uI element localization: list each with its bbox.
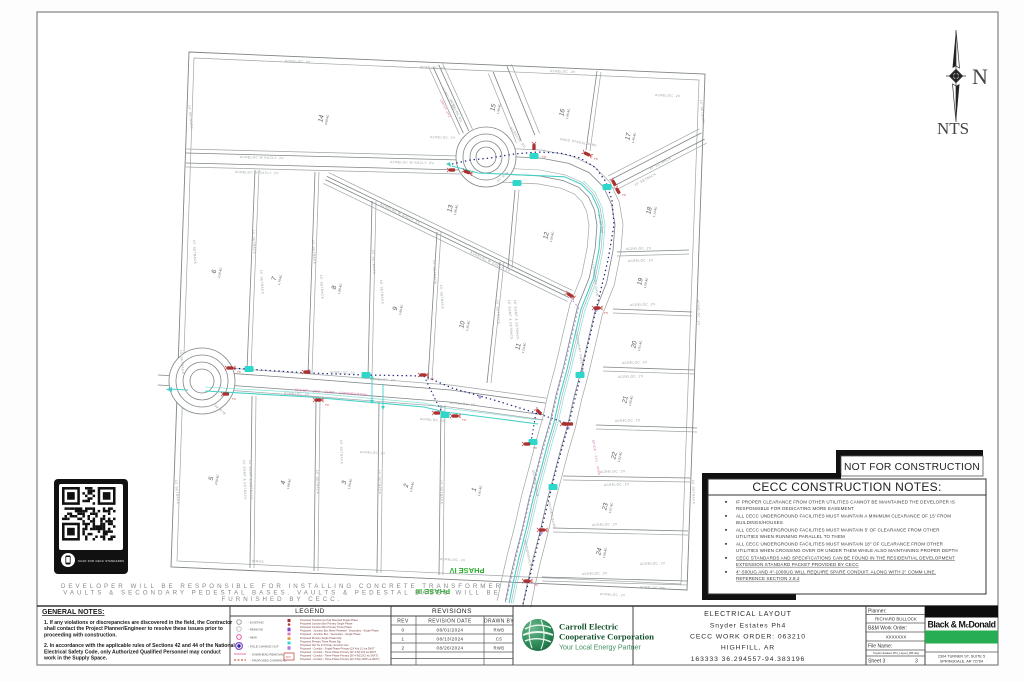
svg-text:BUILDINGS/HOUSES: BUILDINGS/HOUSES: [736, 520, 783, 525]
svg-text:Cooperative Corporation: Cooperative Corporation: [559, 632, 654, 642]
svg-text:REV: REV: [397, 619, 409, 625]
svg-text:2. In accordance with the app: 2. In accordance with the applicable rul…: [44, 643, 235, 649]
svg-text:DRAWN BY: DRAWN BY: [484, 619, 514, 625]
svg-text:ELECTRICAL LAYOUT: ELECTRICAL LAYOUT: [704, 611, 792, 618]
svg-text:163333 36.294557-94.383196: 163333 36.294557-94.383196: [691, 656, 806, 663]
svg-text:Your Local Energy Partner: Your Local Energy Partner: [559, 645, 642, 652]
svg-text:NTS: NTS: [937, 119, 969, 138]
svg-text:Proposed - Junction Box Meter: Proposed - Junction Box Meter Pedestal -…: [300, 629, 379, 633]
svg-text:RESPONSIBLE FOR DEDICATING MOR: RESPONSIBLE FOR DEDICATING MORE EASEMENT: [736, 506, 854, 511]
svg-text:Proposed Transformer Pad Mount: Proposed Transformer Pad Mounted Single …: [300, 618, 359, 622]
svg-text:CECC CONSTRUCTION NOTES:: CECC CONSTRUCTION NOTES:: [752, 480, 941, 494]
svg-text:ALL CECC UNDERGROUND FACILITIE: ALL CECC UNDERGROUND FACILITIES MUST MAI…: [736, 528, 940, 533]
svg-text:ALL CECC UNDERGROUND FACILITIE: ALL CECC UNDERGROUND FACILITIES MUST MAI…: [736, 542, 944, 547]
svg-text:Proposed - Conduit - Three Pha: Proposed - Conduit - Three Phase Primary…: [300, 650, 377, 654]
svg-text:2304 TURNER ST, SUITE 5: 2304 TURNER ST, SUITE 5: [938, 655, 985, 659]
svg-text:Proposed Hot Tie In Primary Ju: Proposed Hot Tie In Primary Junction Can: [300, 643, 349, 647]
svg-text:08/13/2024: 08/13/2024: [437, 637, 464, 642]
svg-text:TX: TX: [594, 157, 598, 161]
svg-text:work in the Supply Space.: work in the Supply Space.: [43, 656, 108, 662]
svg-text:08/01/2024: 08/01/2024: [437, 628, 464, 633]
svg-text:Proposed Primary Single Phase: Proposed Primary Single Phase Dip: [300, 636, 342, 640]
svg-text:ALL CECC UNDERGROUND FACILITIE: ALL CECC UNDERGROUND FACILITIES MUST MAI…: [736, 514, 951, 519]
svg-text:- REMOVE: - REMOVE: [248, 628, 263, 632]
svg-text:TX: TX: [542, 155, 546, 159]
svg-text:TX: TX: [533, 446, 537, 450]
svg-text:PHASE IV: PHASE IV: [449, 566, 484, 575]
svg-text:1: 1: [402, 637, 405, 642]
svg-text:XXXXXXX: XXXXXXX: [886, 635, 907, 640]
svg-text:Proposed - Junction Box - Seco: Proposed - Junction Box - Secondary - Si…: [300, 632, 361, 636]
svg-text:KINGS: KINGS: [252, 559, 264, 564]
svg-text:NOT FOR CONSTRUCTION: NOT FOR CONSTRUCTION: [844, 462, 980, 473]
svg-text:Sheet 3: Sheet 3: [868, 659, 885, 665]
svg-text:Proposed Primary Three Phase D: Proposed Primary Three Phase Dip: [300, 639, 341, 643]
svg-text:TX: TX: [604, 311, 608, 315]
svg-text:- NEW: - NEW: [248, 636, 257, 640]
svg-text:REVISIONS: REVISIONS: [432, 608, 472, 615]
svg-text:JCT: JCT: [286, 655, 292, 659]
svg-text:Carroll Electric: Carroll Electric: [559, 622, 618, 632]
svg-text:1. If any violations or discr: 1. If any violations or discrepancies ar…: [44, 620, 232, 626]
svg-text:SCAN FOR CECC STANDARDS: SCAN FOR CECC STANDARDS: [78, 559, 124, 563]
svg-text:CECC STANDARDS AND SPECIFICATI: CECC STANDARDS AND SPECIFICATIONS CAN BE…: [736, 556, 955, 561]
svg-text:IF PROPER CLEARANCE FROM OTHER: IF PROPER CLEARANCE FROM OTHER UTILITIES…: [736, 500, 955, 505]
svg-text:- OVERHEAD REMOVAL: - OVERHEAD REMOVAL: [250, 653, 284, 657]
svg-text:LEGEND: LEGEND: [295, 608, 325, 615]
svg-text:- PROPOSED OVERHEAD: - PROPOSED OVERHEAD: [250, 659, 287, 663]
svg-text:Proposed - Conduit - Three Pha: Proposed - Conduit - Three Phase Primary…: [300, 654, 378, 658]
svg-text:TX: TX: [237, 370, 241, 374]
svg-text:Snyder Estates Ph4: Snyder Estates Ph4: [710, 623, 786, 630]
svg-text:CECC WORK ORDER: 063210: CECC WORK ORDER: 063210: [690, 634, 806, 641]
svg-text:0: 0: [402, 628, 405, 633]
svg-text:SPRINGDALE, AR 72764: SPRINGDALE, AR 72764: [940, 660, 983, 664]
svg-text:UTILITIES WHEN RUNNING PARALLE: UTILITIES WHEN RUNNING PARALLEL TO THEM: [736, 534, 845, 539]
svg-text:4"-500UG AND 4"-1000UG WILL RE: 4"-500UG AND 4"-1000UG WILL REQUIRE SPAR…: [736, 570, 936, 575]
svg-text:Proposed - Conduit - Single Ph: Proposed - Conduit - Single Phase Primar…: [300, 646, 375, 650]
svg-text:RWB: RWB: [494, 628, 505, 633]
svg-text:REFERENCE SECTION 2.8.2: REFERENCE SECTION 2.8.2: [736, 576, 800, 581]
svg-text:- POLE CHANGE OUT: - POLE CHANGE OUT: [248, 645, 279, 649]
svg-text:3: 3: [915, 659, 918, 665]
svg-text:GENERAL NOTES:: GENERAL NOTES:: [42, 609, 105, 616]
svg-text:UTILITIES WHEN CROSSING OVER O: UTILITIES WHEN CROSSING OVER OR UNDER TH…: [736, 548, 958, 553]
svg-text:HIGHFILL, AR: HIGHFILL, AR: [721, 645, 775, 652]
svg-text:FURNISHED BY CECC.: FURNISHED BY CECC.: [222, 596, 343, 603]
svg-text:- EXISTING: - EXISTING: [248, 621, 265, 625]
svg-text:Planner:: Planner:: [868, 609, 887, 615]
svg-text:proceeding with construction.: proceeding with construction.: [44, 632, 117, 638]
svg-text:REVISION DATE: REVISION DATE: [428, 619, 472, 625]
svg-text:Electrical Safety Code, only A: Electrical Safety Code, only Authorized …: [44, 649, 221, 655]
svg-text:TX: TX: [622, 193, 626, 197]
svg-text:Snyder Estates Ph4_Layout_RB.d: Snyder Estates Ph4_Layout_RB.dwg: [873, 651, 919, 655]
svg-text:RWB: RWB: [494, 646, 505, 651]
svg-text:TX: TX: [462, 418, 466, 422]
svg-text:2: 2: [402, 646, 405, 651]
svg-text:TX: TX: [325, 403, 329, 407]
svg-text:TX: TX: [534, 583, 538, 587]
svg-text:Black & McDonald: Black & McDonald: [927, 620, 995, 630]
svg-text:RICHARD BULLOCK: RICHARD BULLOCK: [875, 617, 917, 622]
svg-text:TX: TX: [430, 377, 434, 381]
svg-text:TX: TX: [232, 397, 236, 401]
svg-text:08/26/2024: 08/26/2024: [437, 646, 464, 651]
svg-text:Proposed Junction Box Primary: Proposed Junction Box Primary Single Pha…: [300, 622, 353, 626]
svg-text:N: N: [972, 64, 988, 89]
svg-text:B&M Work Order:: B&M Work Order:: [868, 626, 907, 632]
svg-text:EXTENSION STANDARD PACKET PROV: EXTENSION STANDARD PACKET PROVIDED BY CE…: [736, 562, 859, 567]
svg-text:Proposed - Conduit - Three Pha: Proposed - Conduit - Three Phase Primary…: [300, 657, 380, 661]
svg-text:Proposed Junction Box Primary: Proposed Junction Box Primary Three Phas…: [300, 625, 352, 629]
svg-text:File Name:: File Name:: [868, 644, 892, 650]
svg-text:CS: CS: [496, 637, 503, 642]
svg-text:shall contact the Project Plan: shall contact the Project Planner/Engine…: [44, 626, 223, 632]
